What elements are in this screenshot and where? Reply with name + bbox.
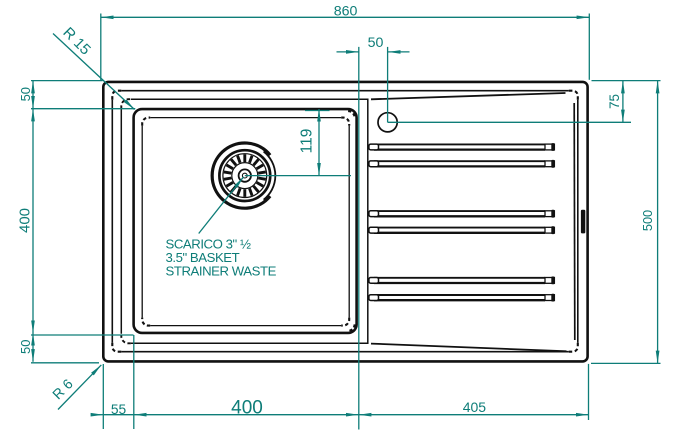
svg-text:119: 119 bbox=[299, 129, 316, 154]
svg-text:500: 500 bbox=[640, 210, 655, 231]
svg-text:STRAINER WASTE: STRAINER WASTE bbox=[166, 263, 277, 278]
svg-text:400: 400 bbox=[231, 397, 263, 418]
svg-text:55: 55 bbox=[111, 402, 127, 417]
svg-text:75: 75 bbox=[607, 94, 622, 109]
svg-text:400: 400 bbox=[17, 208, 34, 233]
svg-text:405: 405 bbox=[463, 399, 487, 415]
svg-text:50: 50 bbox=[368, 35, 384, 51]
svg-text:860: 860 bbox=[334, 3, 358, 19]
svg-text:50: 50 bbox=[18, 340, 33, 354]
svg-text:50: 50 bbox=[18, 87, 33, 101]
